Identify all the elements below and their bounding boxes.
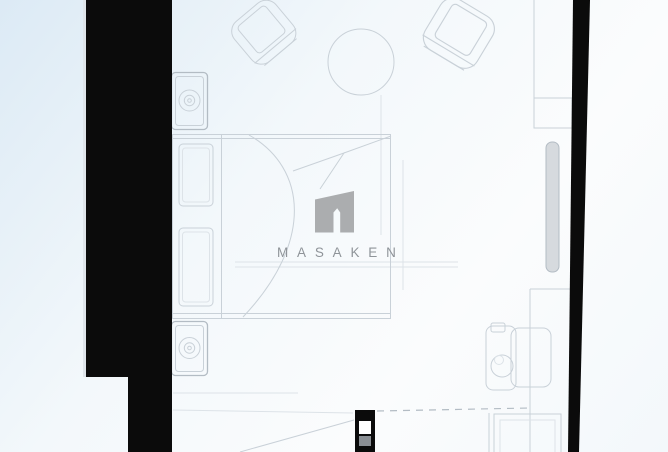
right-wall — [568, 0, 590, 452]
bathroom-partition — [530, 289, 570, 452]
armchair-top-right — [418, 0, 500, 74]
blanket-fold-curve — [243, 135, 294, 317]
bed — [173, 135, 392, 319]
nightstand-top — [172, 73, 208, 130]
left-wall-edge-highlight — [83, 0, 86, 377]
blanket-fold-triangle — [293, 153, 344, 189]
shower-tray — [489, 413, 561, 452]
wardrobe-shelves — [534, 0, 572, 128]
nightstand-bottom — [172, 322, 208, 376]
door-swing-line — [240, 420, 354, 452]
door-jamb — [355, 410, 375, 452]
masaken-wordmark: MASAKEN — [277, 245, 405, 260]
pillow — [179, 144, 213, 206]
round-table — [328, 29, 394, 95]
threshold-dashed-line — [377, 408, 530, 411]
masaken-logo-icon — [315, 191, 354, 233]
floorplan-image: MASAKEN — [0, 0, 668, 452]
pillow — [179, 228, 213, 306]
sliding-door-leaf — [546, 142, 559, 272]
armchair-top-left — [226, 0, 301, 69]
left-wall — [86, 0, 172, 452]
floorplan-drawing — [0, 0, 668, 452]
bathroom-fixture — [511, 328, 551, 387]
